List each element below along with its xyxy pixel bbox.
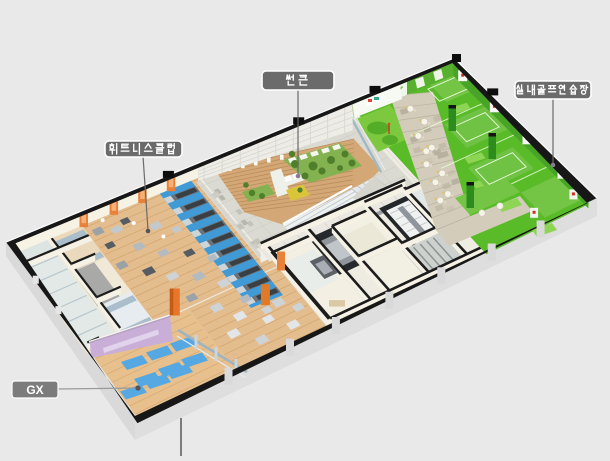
svg-text:GX: GX — [26, 383, 43, 397]
